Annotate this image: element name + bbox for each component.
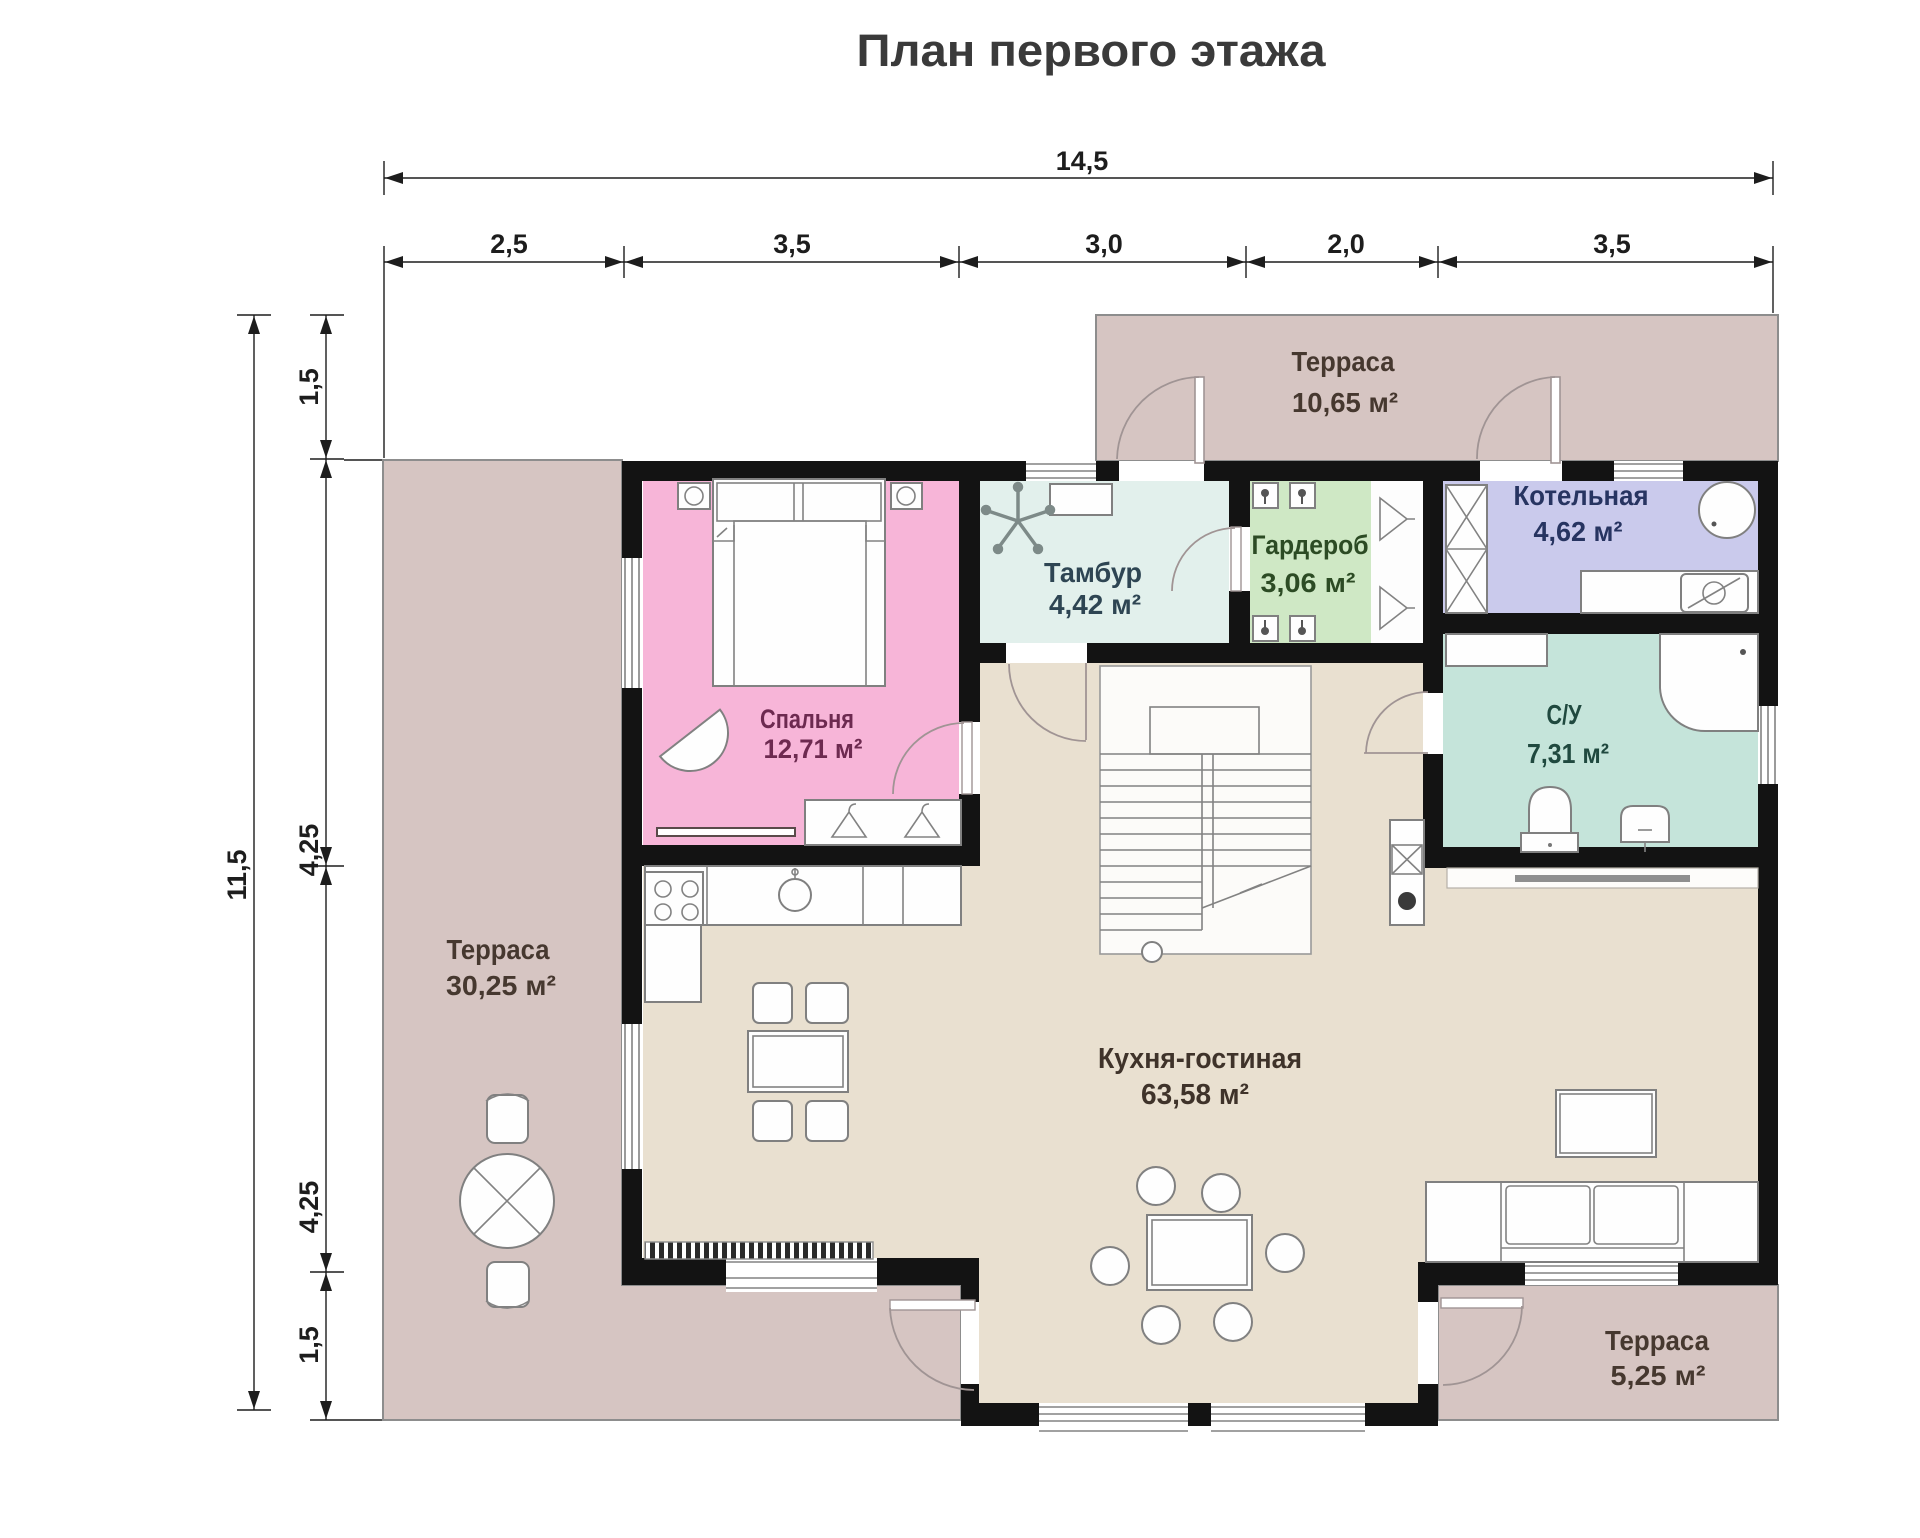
svg-text:63,58 м²: 63,58 м² (1141, 1079, 1249, 1111)
svg-text:7,31 м²: 7,31 м² (1527, 738, 1609, 769)
svg-text:С/У: С/У (1547, 699, 1582, 730)
svg-text:Кухня-гостиная: Кухня-гостиная (1098, 1043, 1302, 1075)
svg-text:2,5: 2,5 (490, 229, 528, 259)
svg-text:Гардероб: Гардероб (1252, 530, 1369, 560)
svg-text:3,5: 3,5 (1593, 229, 1631, 259)
svg-text:2,0: 2,0 (1327, 229, 1365, 259)
svg-text:4,62 м²: 4,62 м² (1534, 516, 1623, 547)
svg-text:5,25 м²: 5,25 м² (1611, 1360, 1706, 1391)
svg-text:План первого этажа: План первого этажа (857, 25, 1327, 76)
svg-text:1,5: 1,5 (294, 1326, 324, 1364)
svg-text:1,5: 1,5 (294, 368, 324, 406)
svg-text:12,71 м²: 12,71 м² (764, 734, 863, 764)
svg-text:4,42 м²: 4,42 м² (1049, 589, 1141, 620)
svg-text:Терраса: Терраса (447, 934, 550, 965)
svg-text:4,25: 4,25 (294, 1181, 324, 1234)
svg-text:Спальня: Спальня (760, 704, 854, 734)
svg-text:Тамбур: Тамбур (1044, 557, 1142, 588)
svg-text:Терраса: Терраса (1605, 1325, 1709, 1356)
svg-text:30,25 м²: 30,25 м² (446, 970, 556, 1001)
svg-text:3,06 м²: 3,06 м² (1261, 568, 1356, 598)
svg-text:10,65 м²: 10,65 м² (1292, 387, 1398, 418)
svg-text:4,25: 4,25 (294, 824, 324, 877)
svg-text:11,5: 11,5 (222, 849, 252, 900)
svg-text:Терраса: Терраса (1292, 346, 1395, 377)
svg-text:14,5: 14,5 (1056, 146, 1109, 176)
svg-text:3,0: 3,0 (1085, 229, 1123, 259)
svg-text:Котельная: Котельная (1514, 480, 1649, 511)
svg-text:3,5: 3,5 (773, 229, 811, 259)
